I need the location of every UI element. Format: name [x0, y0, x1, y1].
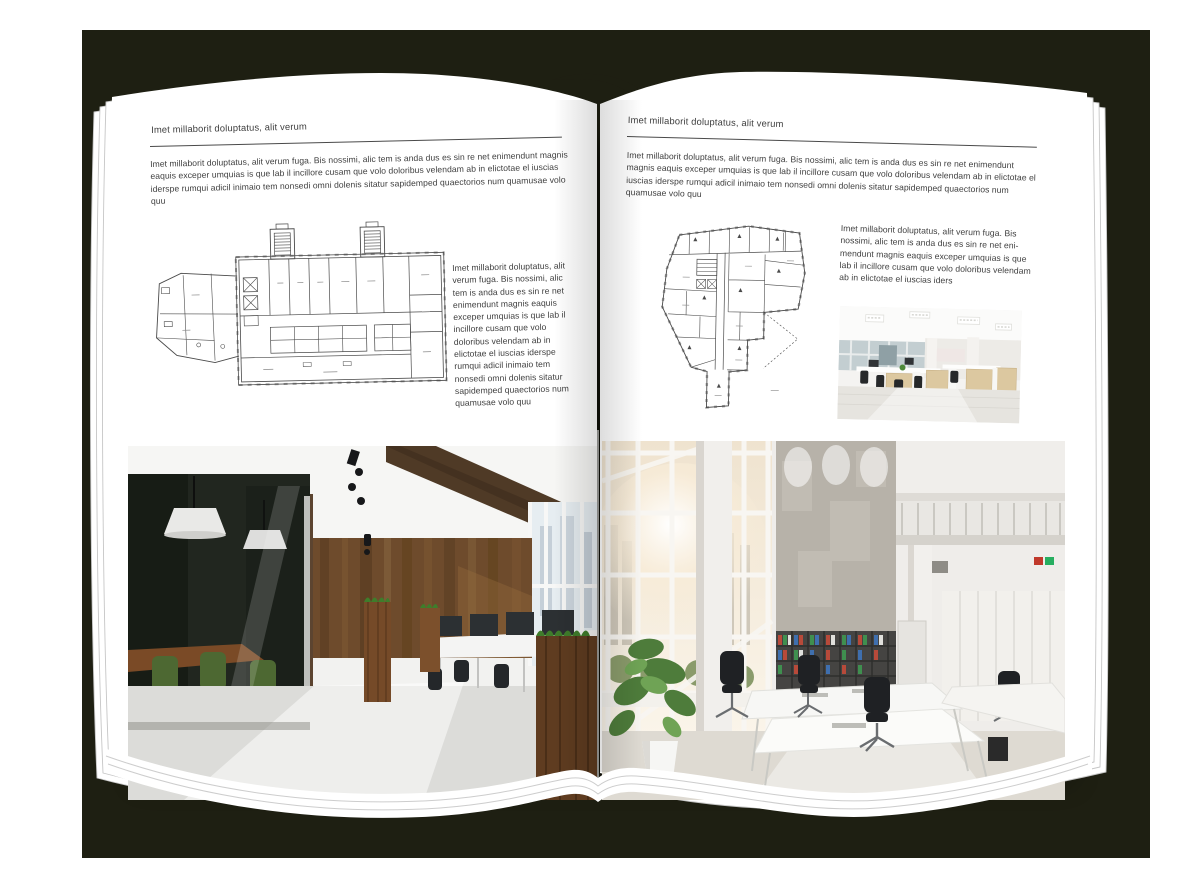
right-side-paragraph: Imet millaborit doluptatus, alit verum f… — [839, 222, 1037, 290]
photo-atrium-office-interior — [602, 441, 1065, 800]
left-floor-plan-drawing — [150, 219, 452, 414]
left-intro-paragraph: Imet millaborit doluptatus, alit verum f… — [150, 149, 569, 208]
magazine-spread-mockup: Imet millaborit doluptatus, alit verum I… — [0, 0, 1200, 891]
photo-open-plan-office-small — [837, 306, 1022, 423]
photo-loft-office-interior — [128, 446, 597, 800]
left-side-paragraph: Imet millaborit doluptatus, alit verum f… — [452, 259, 578, 409]
right-floor-plan-drawing — [650, 219, 825, 419]
